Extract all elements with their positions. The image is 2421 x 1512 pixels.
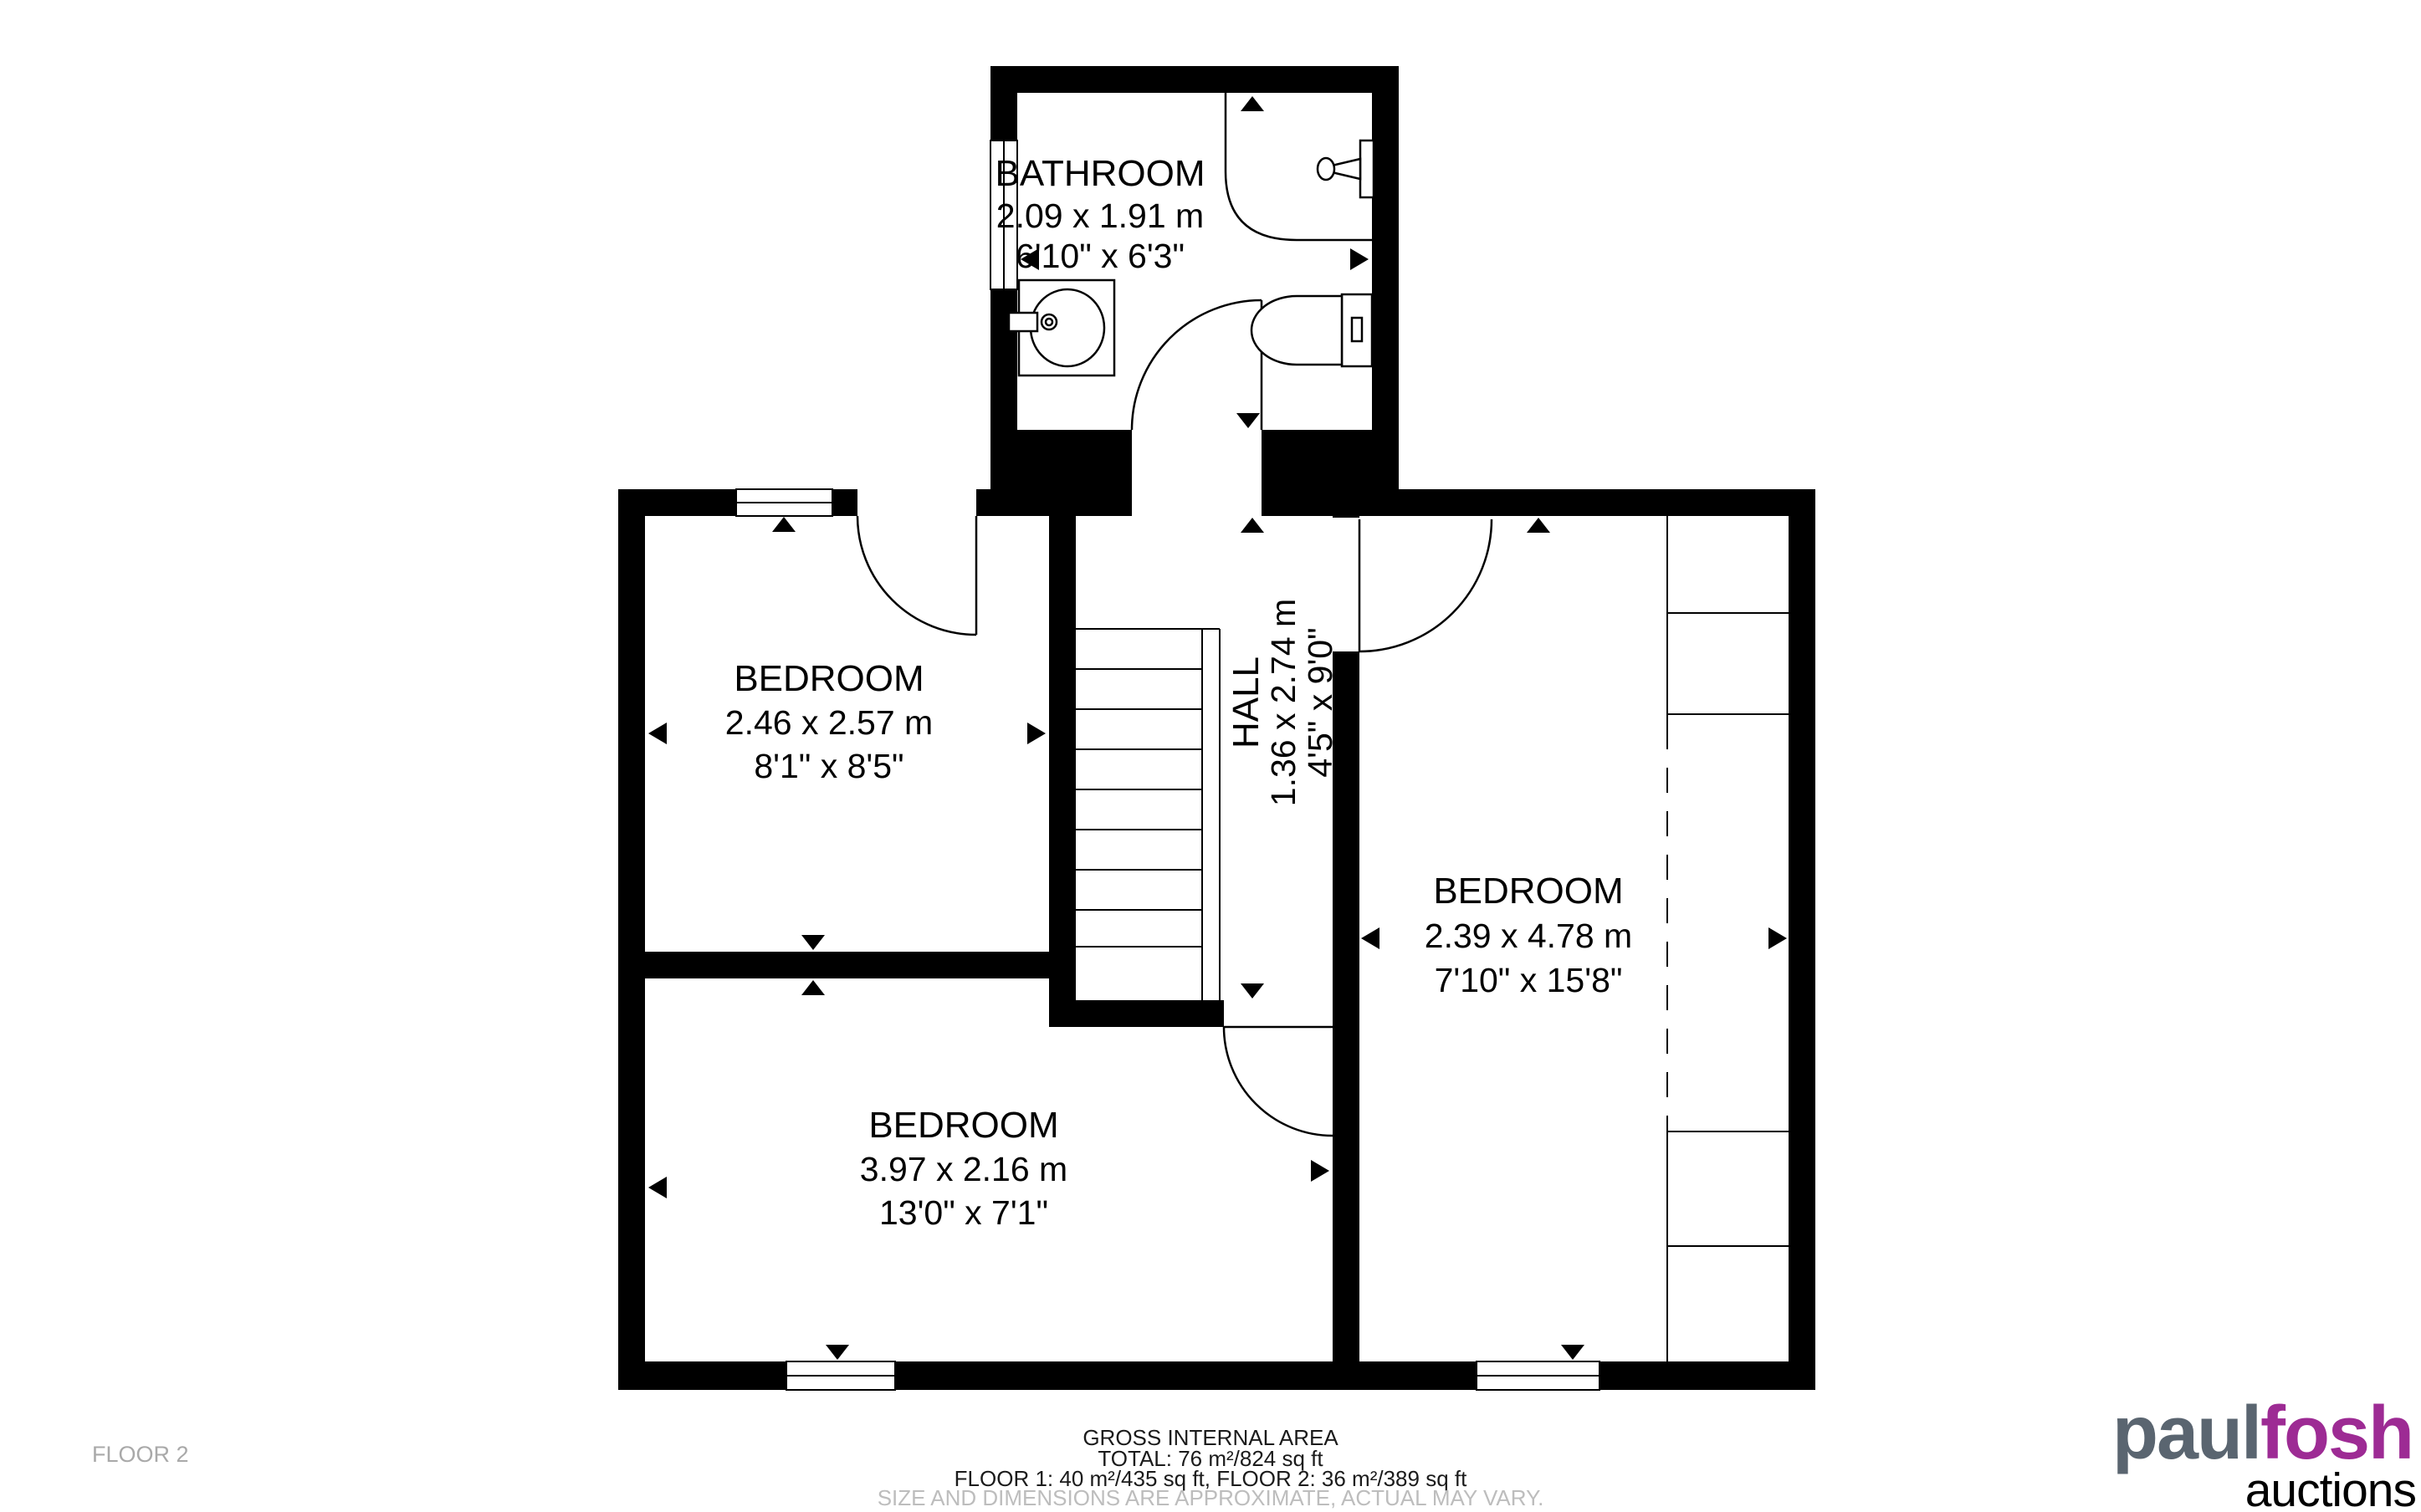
wall-stairs-bottom [1076, 1000, 1224, 1027]
window-bedroom-bottom [786, 1361, 895, 1390]
room-name: BEDROOM [868, 1105, 1058, 1146]
wall-bedroom-divider [618, 952, 1076, 978]
floorplan-canvas: BATHROOM 2.09 x 1.91 m 6'10" x 6'3" BEDR… [0, 0, 2421, 1512]
room-name: HALL [1226, 656, 1267, 748]
window-bedroom-right-bottom [1477, 1361, 1599, 1390]
floorplan-page: BATHROOM 2.09 x 1.91 m 6'10" x 6'3" BEDR… [0, 0, 2421, 1512]
room-metric: 2.39 x 4.78 m [1425, 917, 1632, 955]
svg-text:paulfosh: paulfosh [2112, 1392, 2413, 1475]
room-imperial: 6'10" x 6'3" [1016, 237, 1185, 275]
room-name: BEDROOM [1433, 871, 1623, 912]
room-label-bathroom: BATHROOM 2.09 x 1.91 m 6'10" x 6'3" [996, 153, 1205, 275]
window-bedroom-left-top [736, 489, 832, 516]
disclaimer: SIZE AND DIMENSIONS ARE APPROXIMATE, ACT… [878, 1485, 1544, 1510]
wall-main-left [618, 489, 645, 1390]
logo-part-paul: paul [2112, 1392, 2260, 1475]
room-imperial: 13'0" x 7'1" [879, 1193, 1048, 1232]
logo-part-auctions: auctions [2245, 1463, 2416, 1512]
room-name: BEDROOM [734, 658, 924, 699]
room-name: BATHROOM [996, 153, 1205, 194]
wall-main-right [1789, 489, 1815, 1390]
wall-bathroom-right [1372, 66, 1399, 489]
wall-bathroom-top [990, 66, 1399, 93]
sink-icon [1009, 280, 1114, 375]
room-imperial: 7'10" x 15'8" [1435, 961, 1623, 999]
floor-number-label: FLOOR 2 [92, 1442, 189, 1467]
logo-part-fosh: fosh [2260, 1392, 2413, 1475]
room-imperial: 4'5" x 9'0" [1301, 627, 1339, 777]
opening-bedroom-left-door [857, 489, 976, 516]
room-label-bedroom-right: BEDROOM 2.39 x 4.78 m 7'10" x 15'8" [1425, 871, 1632, 999]
toilet-icon [1251, 294, 1372, 366]
room-metric: 3.97 x 2.16 m [860, 1150, 1067, 1188]
room-metric: 2.46 x 2.57 m [725, 703, 933, 742]
room-label-bedroom-left: BEDROOM 2.46 x 2.57 m 8'1" x 8'5" [725, 658, 933, 785]
room-label-bedroom-bottom: BEDROOM 3.97 x 2.16 m 13'0" x 7'1" [860, 1105, 1067, 1232]
page-background [0, 0, 2421, 1512]
room-metric: 2.09 x 1.91 m [996, 197, 1204, 235]
room-imperial: 8'1" x 8'5" [754, 747, 903, 785]
wall-bedroom-left-right [1049, 516, 1076, 1027]
opening-hall-door [1224, 1000, 1333, 1027]
room-metric: 1.36 x 2.74 m [1264, 599, 1303, 806]
opening-bathroom-door [1132, 430, 1262, 516]
